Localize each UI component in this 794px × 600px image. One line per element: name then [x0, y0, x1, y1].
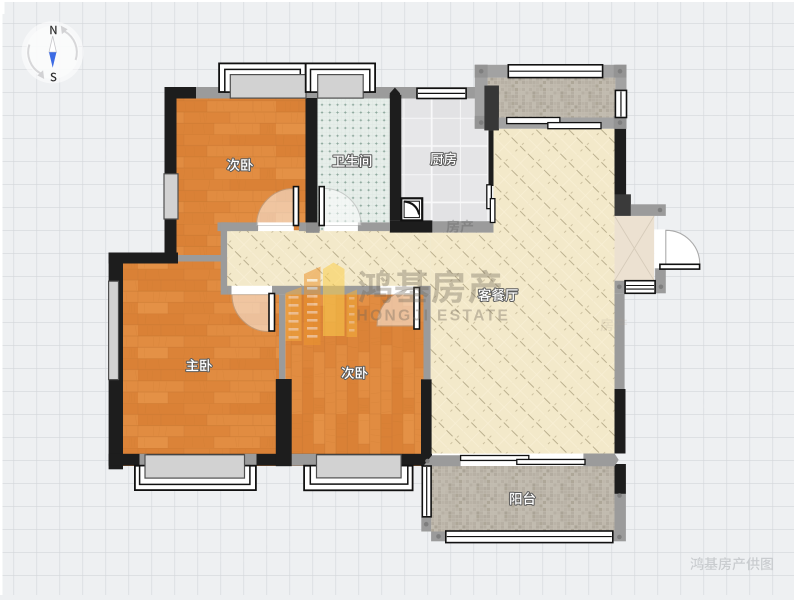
svg-text:HONGJI ESTATE: HONGJI ESTATE	[357, 308, 511, 325]
